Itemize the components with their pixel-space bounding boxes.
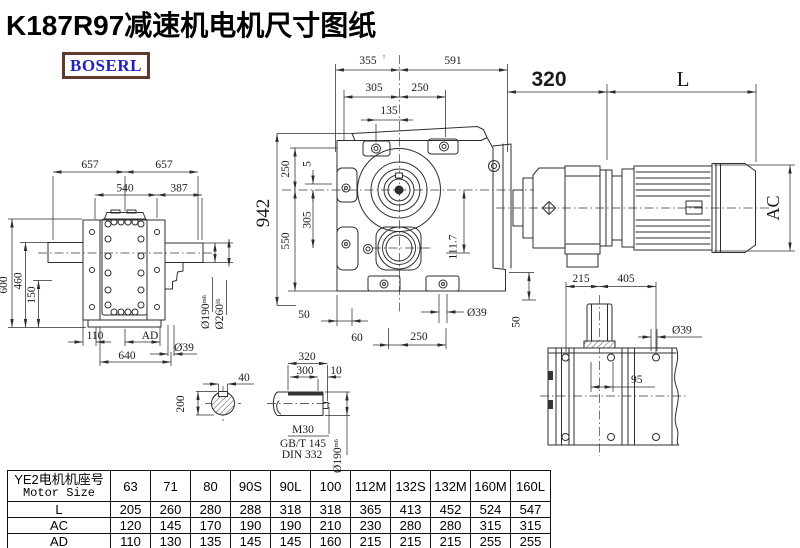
dim-side-ad: AD — [142, 330, 159, 342]
dim-front-5: 5 — [302, 161, 314, 167]
table-cell: 130 — [151, 534, 191, 548]
table-cell: 413 — [391, 502, 431, 518]
table-column-header: 132M — [431, 471, 471, 502]
table-cell: 255 — [511, 534, 551, 548]
label-shaft-din332: DIN 332 — [282, 449, 323, 461]
table-cell: 288 — [231, 502, 271, 518]
table-column-header: 112M — [351, 471, 391, 502]
dim-front-250-bottom: 250 — [410, 331, 428, 343]
table-cell: 255 — [471, 534, 511, 548]
table-cell: 205 — [111, 502, 151, 518]
table-cell: 524 — [471, 502, 511, 518]
dim-front-dia39: Ø39 — [467, 307, 487, 319]
dim-side-640: 640 — [118, 350, 136, 362]
table-column-header: 132S — [391, 471, 431, 502]
dim-side-dia260: Ø260f6 — [214, 298, 226, 330]
table-row-ac: AC120145170190190210230280280315315 — [8, 518, 551, 534]
dim-motor-AC: AC — [763, 195, 783, 220]
dim-shaft-40: 40 — [238, 372, 250, 384]
table-header-row: YE2电机机座号Motor Size63718090S90L100112M132… — [8, 471, 551, 502]
table-cell: 190 — [231, 518, 271, 534]
table-cell: 145 — [151, 518, 191, 534]
table-cell: 230 — [351, 518, 391, 534]
dim-side-460: 460 — [13, 272, 25, 290]
table-cell: 280 — [391, 518, 431, 534]
dim-front-135: 135 — [380, 105, 398, 117]
dim-front-50-bottom: 50 — [298, 309, 310, 321]
table-header-cn: YE2电机机座号 — [8, 472, 110, 487]
dim-front-305-left: 305 — [302, 211, 314, 229]
dim-front-305-top: 305 — [365, 82, 383, 94]
dim-top-405: 405 — [617, 273, 635, 285]
dim-side-150: 150 — [26, 286, 38, 304]
table-cell: 318 — [311, 502, 351, 518]
table-cell: 280 — [431, 518, 471, 534]
dim-side-110: 110 — [87, 330, 104, 342]
dim-shaft-dia190: Ø190m6 — [332, 438, 344, 473]
table-cell: 547 — [511, 502, 551, 518]
table-cell: 160 — [311, 534, 351, 548]
table-cell: 452 — [431, 502, 471, 518]
table-column-header: 63 — [111, 471, 151, 502]
drawing-sheet: K187R97减速机电机尺寸图纸 BOSERL — [0, 0, 800, 548]
table-cell: 260 — [151, 502, 191, 518]
table-cell: 120 — [111, 518, 151, 534]
table-cell: 318 — [271, 502, 311, 518]
table-column-header: 160L — [511, 471, 551, 502]
table-row-label: AC — [8, 518, 111, 534]
dim-side-dia190: Ø190m6 — [200, 294, 212, 329]
table-cell: 190 — [271, 518, 311, 534]
table-cell: 210 — [311, 518, 351, 534]
dim-shaft-10: 10 — [330, 365, 342, 377]
dim-shaft-300: 300 — [296, 365, 314, 377]
dim-side-387: 387 — [170, 183, 188, 195]
dim-side-540: 540 — [116, 183, 134, 195]
table-cell: 215 — [391, 534, 431, 548]
dim-front-355-mark: ↑ — [382, 53, 386, 61]
dim-top-dia39: Ø39 — [672, 325, 692, 337]
dim-front-591: 591 — [444, 55, 462, 67]
table-header-en: Motor Size — [8, 487, 110, 500]
dim-top-215: 215 — [572, 273, 590, 285]
table-cell: 110 — [111, 534, 151, 548]
table-row-l: L205260280288318318365413452524547 — [8, 502, 551, 518]
technical-drawing: 657 657 540 387 600 460 150 110 AD 640 Ø… — [0, 0, 800, 548]
table-cell: 145 — [231, 534, 271, 548]
table-cell: 215 — [351, 534, 391, 548]
table-column-header: 90L — [271, 471, 311, 502]
dim-side-600: 600 — [0, 276, 10, 294]
dim-front-60: 60 — [351, 332, 363, 344]
table-row-label: L — [8, 502, 111, 518]
table-column-header: 160M — [471, 471, 511, 502]
table-row-ad: AD110130135145145160215215215255255 — [8, 534, 551, 548]
dim-shaft-200: 200 — [175, 395, 187, 413]
dim-front-355: 355 — [359, 55, 377, 67]
table-cell: 145 — [271, 534, 311, 548]
table-column-header: 90S — [231, 471, 271, 502]
table-row-label: AD — [8, 534, 111, 548]
motor-side-view: 320 L AC — [496, 67, 795, 267]
dim-shaft-320: 320 — [298, 351, 316, 363]
table-cell: 280 — [191, 502, 231, 518]
table-cell: 315 — [511, 518, 551, 534]
table-cell: 315 — [471, 518, 511, 534]
dim-side-657-right: 657 — [155, 159, 173, 171]
top-view: 215 405 Ø39 95 — [540, 273, 702, 456]
table-column-header: 80 — [191, 471, 231, 502]
dim-front-111-7: 111.7 — [448, 234, 460, 259]
dim-motor-L: L — [677, 67, 690, 91]
dim-front-50-right: 50 — [511, 316, 523, 328]
side-view: 657 657 540 387 600 460 150 110 AD 640 Ø… — [0, 159, 233, 366]
shaft-detail: 40 200 320 300 10 M30 GB/T 145 DIN 332 Ø… — [175, 351, 350, 473]
dim-front-550: 550 — [280, 232, 292, 250]
motor-size-table: YE2电机机座号Motor Size63718090S90L100112M132… — [7, 470, 551, 548]
dim-side-657-left: 657 — [81, 159, 99, 171]
dim-front-250-top: 250 — [411, 82, 429, 94]
dim-front-942: 942 — [253, 199, 274, 228]
table-cell: 135 — [191, 534, 231, 548]
table-column-header: 100 — [311, 471, 351, 502]
dim-front-250-left: 250 — [280, 160, 292, 178]
dim-side-dia39: Ø39 — [174, 342, 194, 354]
table-cell: 170 — [191, 518, 231, 534]
table-column-header: 71 — [151, 471, 191, 502]
dim-motor-320: 320 — [531, 68, 566, 91]
front-view: 355 ↑ 591 305 250 135 250 5 550 305 942 … — [253, 53, 536, 349]
table-cell: 215 — [431, 534, 471, 548]
dim-top-95: 95 — [631, 374, 643, 386]
table-header-motor-size: YE2电机机座号Motor Size — [8, 471, 111, 502]
table-cell: 365 — [351, 502, 391, 518]
label-shaft-m30: M30 — [292, 424, 314, 436]
